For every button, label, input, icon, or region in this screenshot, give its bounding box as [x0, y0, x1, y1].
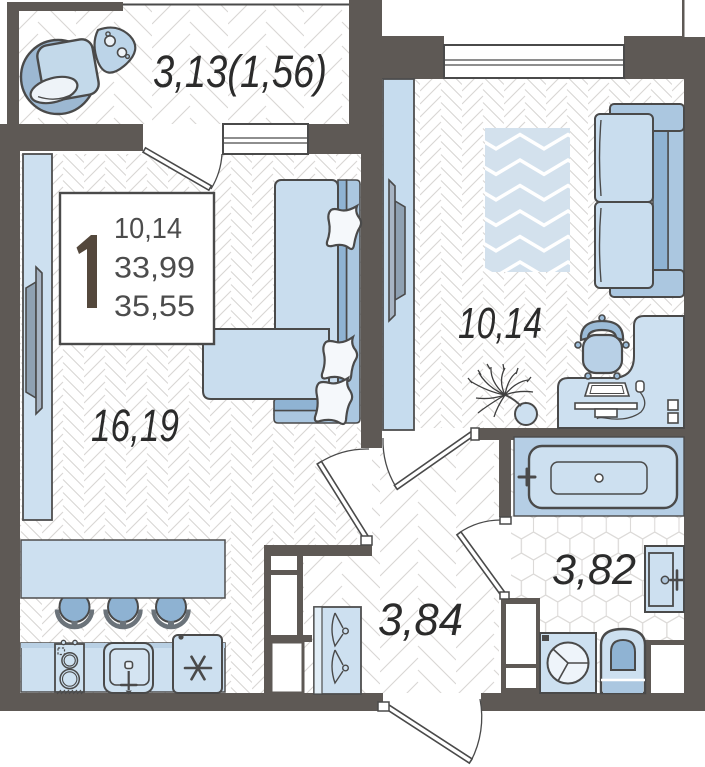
svg-text:33,99: 33,99 — [114, 252, 195, 285]
svg-text:10,14: 10,14 — [114, 213, 182, 245]
svg-text:35,55: 35,55 — [114, 290, 195, 323]
svg-text:10,14: 10,14 — [458, 299, 542, 348]
svg-text:3,84: 3,84 — [378, 594, 463, 645]
svg-text:3,13(1,56): 3,13(1,56) — [153, 46, 327, 97]
svg-text:16,19: 16,19 — [91, 400, 179, 451]
svg-text:3,82: 3,82 — [552, 546, 636, 594]
